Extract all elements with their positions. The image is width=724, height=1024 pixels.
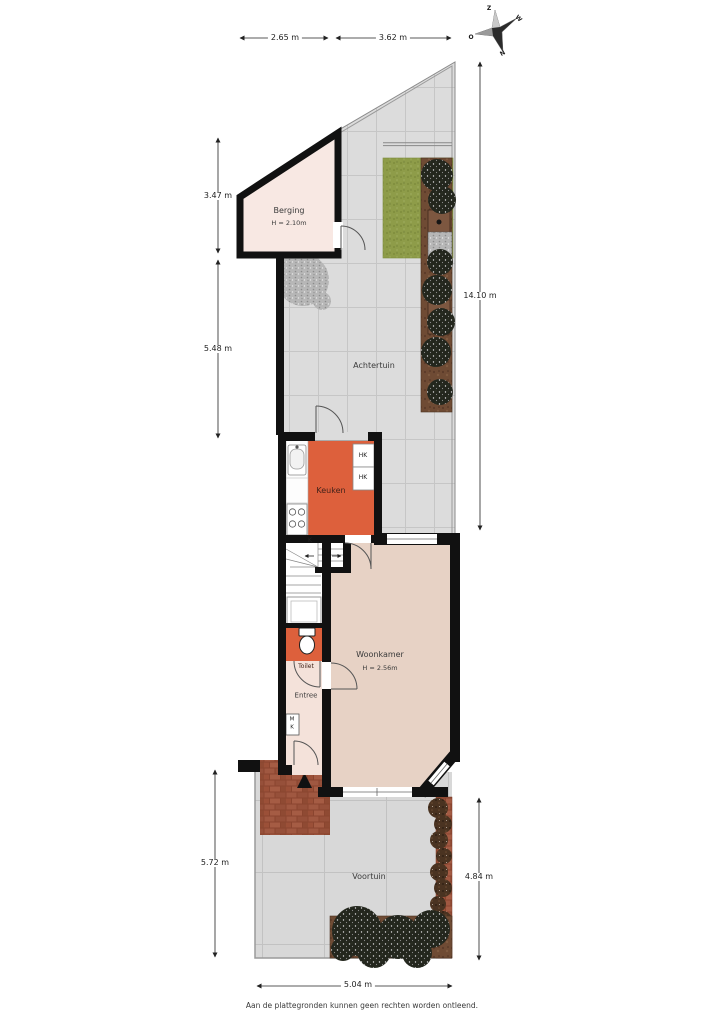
- compass-o: O: [468, 35, 473, 41]
- disclaimer-note: Aan de plattegronden kunnen geen rechten…: [246, 1001, 478, 1010]
- entree-label: Entree: [295, 693, 318, 700]
- floorplan-drawing: [0, 0, 724, 1024]
- meter-k-label: K: [290, 725, 294, 731]
- dim-top-left: 2.65 m: [268, 34, 302, 42]
- dim-left-berging: 3.47 m: [201, 192, 235, 200]
- berging-height-label: H = 2.10m: [271, 220, 306, 227]
- garden-wall: [276, 255, 284, 435]
- compass-z: Z: [487, 6, 491, 12]
- hk-top-label: HK: [359, 453, 367, 459]
- dim-bottom-voortuin: 5.04 m: [341, 981, 375, 989]
- woonkamer-label: Woonkamer: [356, 651, 404, 659]
- achtertuin-label: Achtertuin: [353, 362, 395, 370]
- keuken-label: Keuken: [316, 487, 345, 495]
- living-hall-opening: [322, 662, 331, 689]
- hk-bottom-label: HK: [359, 475, 367, 481]
- berging-label: Berging: [273, 207, 304, 215]
- entree-floor: [286, 661, 322, 765]
- floorplan-page: 2.65 m 3.62 m 3.47 m 5.48 m 14.10 m 5.72…: [0, 0, 724, 1024]
- dim-right-voortuin: 4.84 m: [462, 873, 496, 881]
- voortuin-label: Voortuin: [352, 873, 385, 881]
- gate-wall-stub: [238, 760, 260, 772]
- dim-left-voortuin: 5.72 m: [198, 859, 232, 867]
- kitchen-door-opening: [315, 432, 368, 441]
- dim-left-achtertuin: 5.48 m: [201, 345, 235, 353]
- toilet-tank: [299, 628, 315, 636]
- compass-rose: [475, 10, 517, 52]
- kitchen-living-opening: [345, 535, 371, 543]
- toilet-label: Toilet: [298, 664, 314, 670]
- woonkamer-height-label: H = 2.56m: [362, 665, 397, 672]
- stove: [287, 504, 307, 535]
- dim-top-right: 3.62 m: [376, 34, 410, 42]
- toilet-bowl: [300, 636, 315, 654]
- front-door-opening: [292, 765, 322, 775]
- dim-right-achtertuin: 14.10 m: [460, 292, 499, 300]
- stair-k-label: K: [308, 538, 312, 544]
- meter-m-label: M: [290, 717, 295, 723]
